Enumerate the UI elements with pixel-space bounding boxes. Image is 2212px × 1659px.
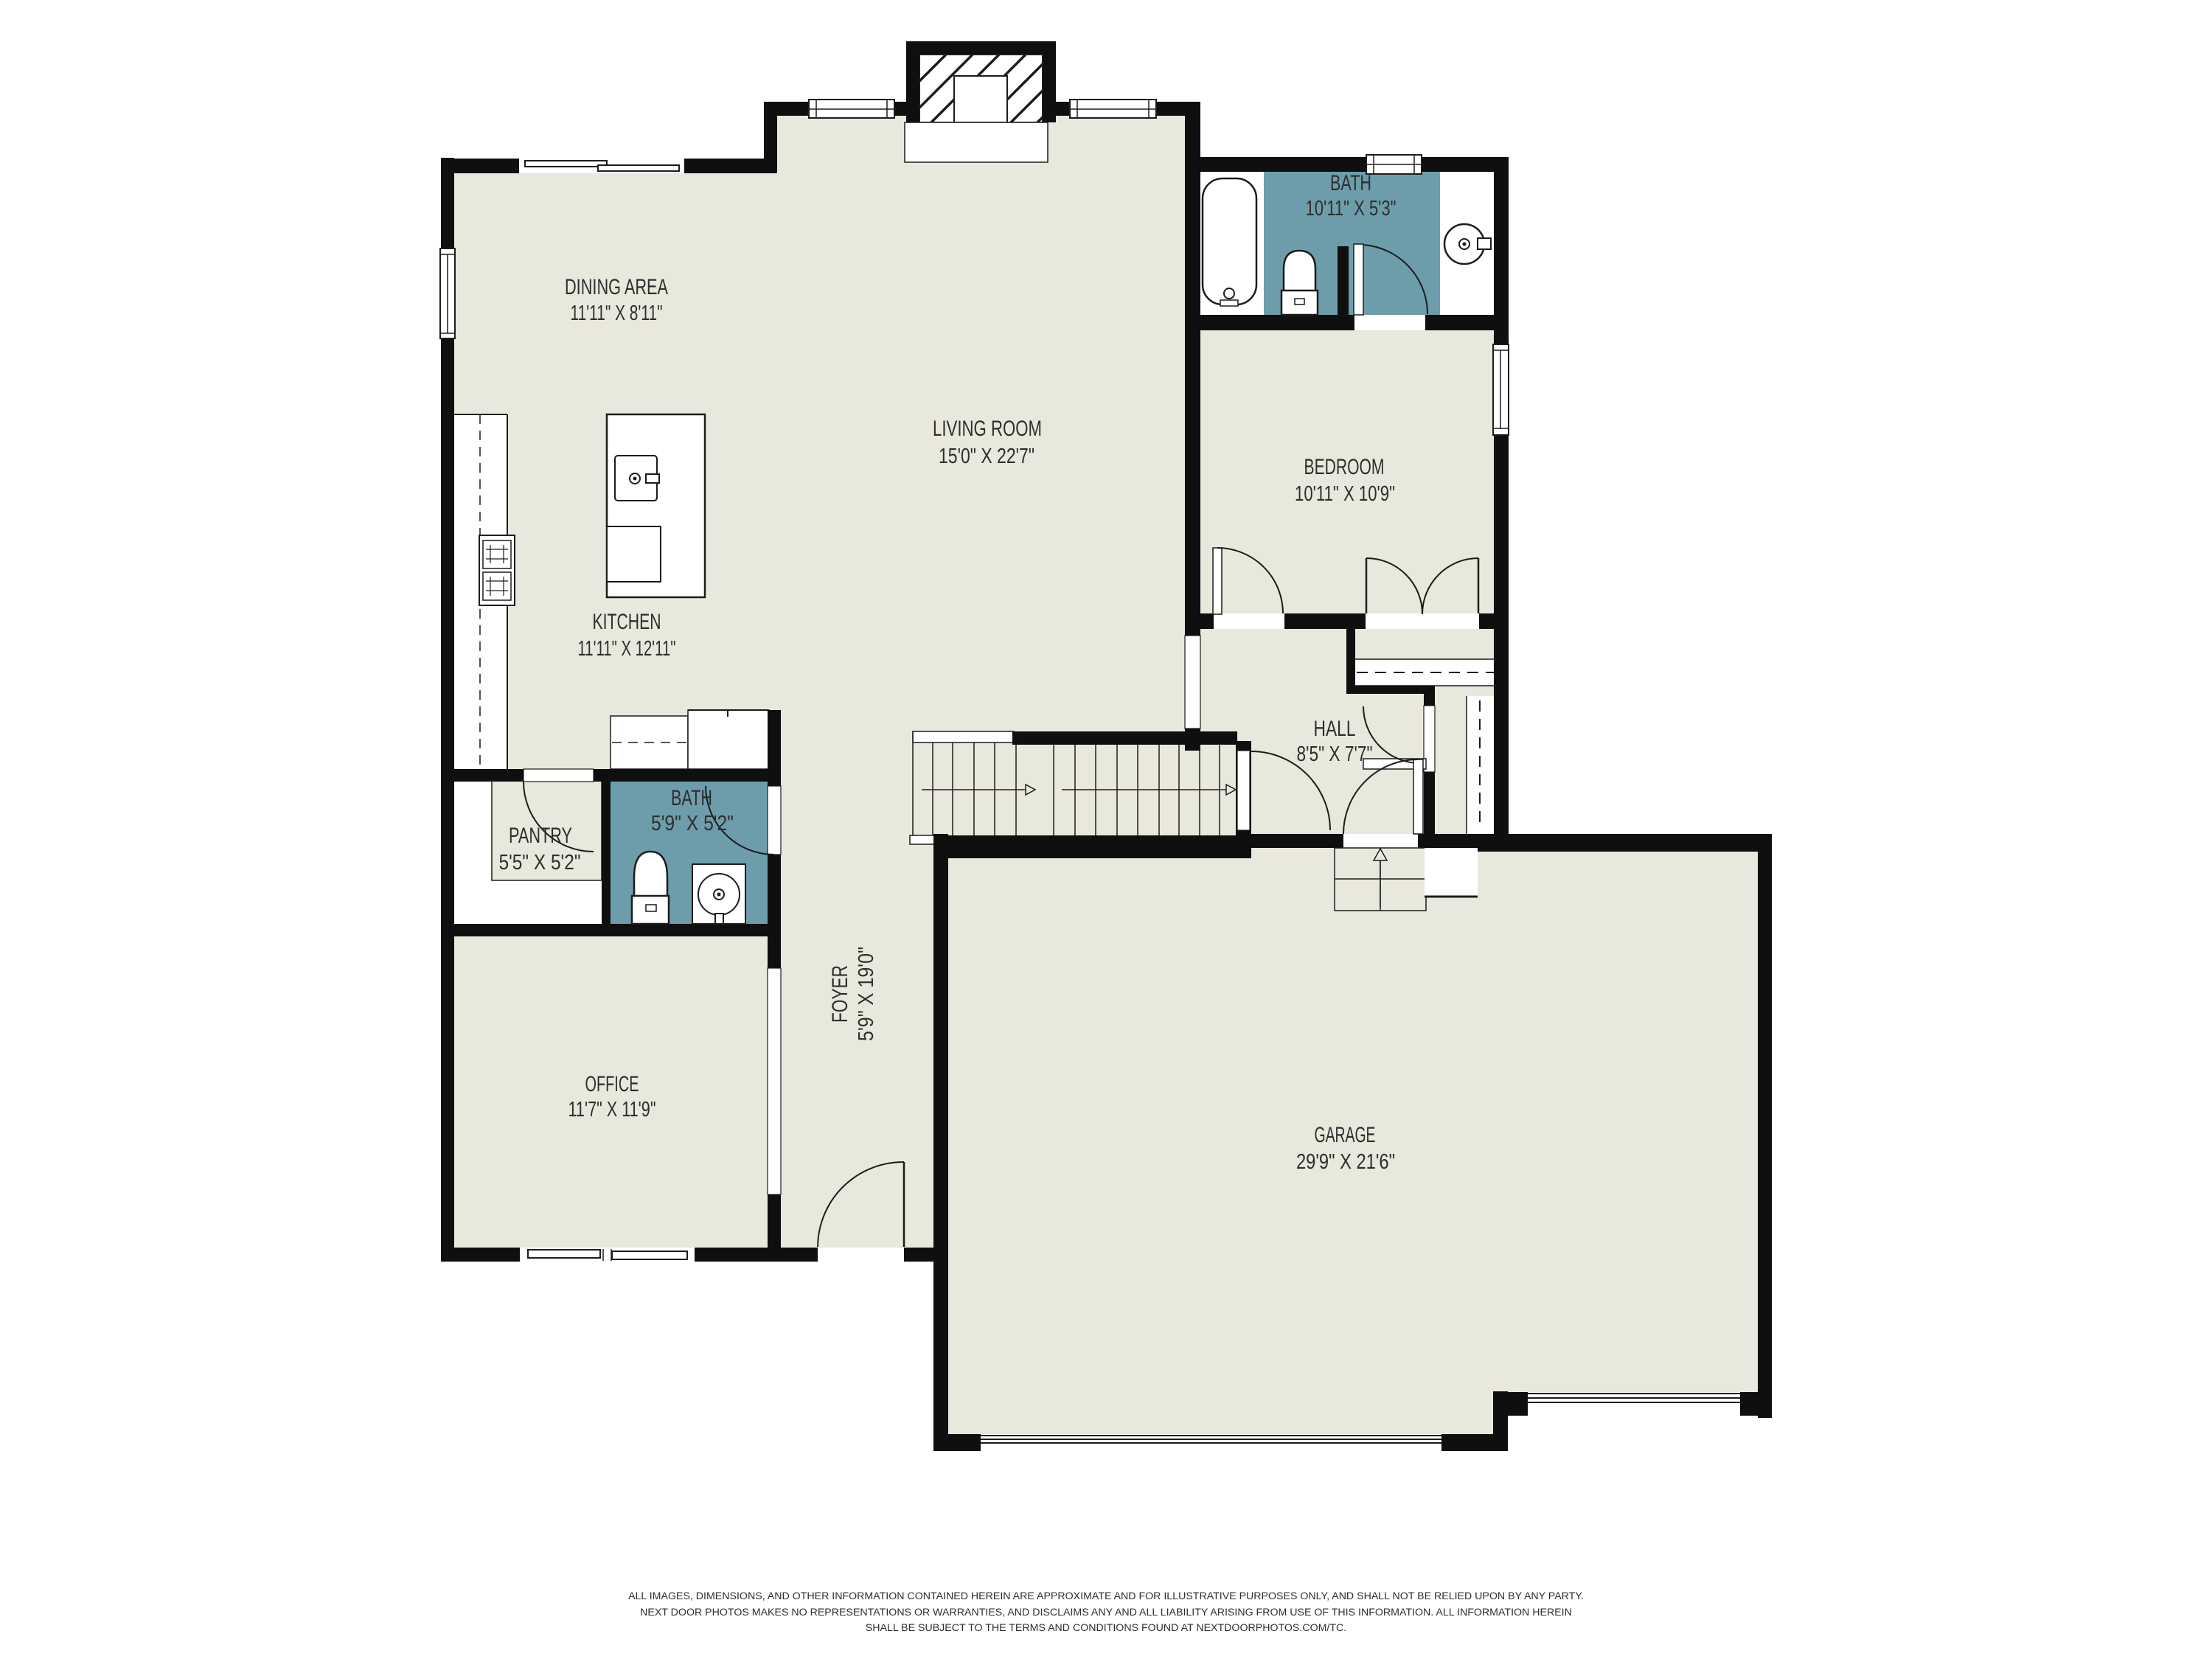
svg-text:5'9" X 19'0": 5'9" X 19'0" (855, 947, 878, 1041)
svg-text:KITCHEN: KITCHEN (593, 610, 661, 634)
svg-text:29'9" X 21'6": 29'9" X 21'6" (1296, 1150, 1395, 1174)
svg-text:NEXT DOOR PHOTOS MAKES NO REPR: NEXT DOOR PHOTOS MAKES NO REPRESENTATION… (640, 1607, 1572, 1618)
svg-text:HALL: HALL (1314, 717, 1356, 741)
svg-text:GARAGE: GARAGE (1315, 1123, 1376, 1147)
svg-text:DINING AREA: DINING AREA (565, 275, 668, 299)
svg-text:LIVING ROOM: LIVING ROOM (933, 417, 1042, 441)
svg-text:ALL IMAGES, DIMENSIONS, AND OT: ALL IMAGES, DIMENSIONS, AND OTHER INFORM… (628, 1590, 1584, 1602)
svg-text:11'11" X 8'11": 11'11" X 8'11" (571, 302, 663, 325)
svg-text:15'0" X 22'7": 15'0" X 22'7" (939, 445, 1034, 468)
svg-text:11'7" X 11'9": 11'7" X 11'9" (568, 1098, 656, 1121)
svg-text:10'11" X 10'9": 10'11" X 10'9" (1295, 482, 1395, 506)
svg-text:5'9" X 5'2": 5'9" X 5'2" (651, 812, 734, 835)
svg-text:BEDROOM: BEDROOM (1304, 455, 1385, 479)
svg-text:BATH: BATH (1330, 171, 1371, 195)
svg-text:PANTRY: PANTRY (509, 824, 572, 848)
svg-text:BATH: BATH (671, 786, 712, 810)
svg-text:FOYER: FOYER (828, 965, 852, 1023)
svg-text:SHALL BE SUBJECT TO THE TERMS: SHALL BE SUBJECT TO THE TERMS AND CONDIT… (866, 1622, 1346, 1634)
svg-text:10'11" X 5'3": 10'11" X 5'3" (1306, 197, 1397, 220)
svg-text:5'5" X 5'2": 5'5" X 5'2" (499, 851, 581, 874)
svg-text:OFFICE: OFFICE (585, 1072, 639, 1096)
svg-text:11'11" X 12'11": 11'11" X 12'11" (578, 637, 676, 661)
svg-text:8'5" X 7'7": 8'5" X 7'7" (1297, 742, 1373, 766)
